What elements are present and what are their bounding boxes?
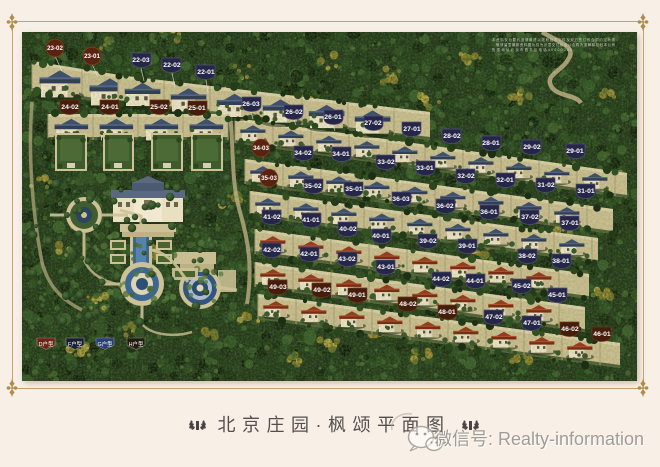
svg-text:22-03: 22-03 [132,57,150,64]
svg-text:25-02: 25-02 [150,104,168,111]
svg-text:37-02: 37-02 [521,214,539,221]
svg-text:40-01: 40-01 [372,233,390,240]
svg-text:F户型: F户型 [68,340,83,348]
svg-text:26-02: 26-02 [285,109,303,116]
svg-text:26-03: 26-03 [242,101,260,108]
svg-text:32-01: 32-01 [496,177,514,184]
svg-text:47-02: 47-02 [485,314,503,321]
svg-text:33-02: 33-02 [377,159,395,166]
svg-text:36-03: 36-03 [392,196,410,203]
svg-text:49-01: 49-01 [348,292,366,299]
svg-text:28-01: 28-01 [482,140,500,147]
svg-text:35-02: 35-02 [304,183,322,190]
svg-text:45-01: 45-01 [548,292,566,299]
svg-text:31-02: 31-02 [537,182,555,189]
svg-text:31-01: 31-01 [577,188,595,195]
svg-text:27-01: 27-01 [403,126,421,133]
svg-text:24-01: 24-01 [101,104,119,111]
svg-text:43-01: 43-01 [377,264,395,271]
svg-text:42-02: 42-02 [263,247,281,254]
svg-text:23-02: 23-02 [47,45,63,52]
svg-text:敬请留意最新资料图片仅为示意交付标准以合同为准解释权归本公司: 敬请留意最新资料图片仅为示意交付标准以合同为准解释权归本公司 [496,42,615,47]
svg-text:25-01: 25-01 [188,105,206,112]
svg-text:49-03: 49-03 [269,284,287,291]
svg-text:46-02: 46-02 [561,326,579,333]
svg-text:35-03: 35-03 [261,175,277,182]
svg-text:47-01: 47-01 [523,320,541,327]
svg-text:28-02: 28-02 [443,133,461,140]
svg-text:35-01: 35-01 [345,186,363,193]
svg-text:38-02: 38-02 [518,253,536,260]
svg-text:22-02: 22-02 [163,62,181,69]
svg-text:43-02: 43-02 [338,256,356,263]
svg-text:45-02: 45-02 [513,283,531,290]
svg-text:29-01: 29-01 [566,148,584,155]
svg-text:41-01: 41-01 [302,217,320,224]
svg-text:22-01: 22-01 [197,69,215,76]
svg-text:39-01: 39-01 [458,243,476,250]
svg-text:44-01: 44-01 [466,278,484,285]
svg-text:34-01: 34-01 [332,151,350,158]
svg-text:37-01: 37-01 [561,220,579,227]
svg-text:48-02: 48-02 [399,301,417,308]
svg-text:44-02: 44-02 [432,276,450,283]
svg-text:本资料仅为要约邀请最终以政府批准文件及双方签订的合同约定为准: 本资料仅为要约邀请最终以政府批准文件及双方签订的合同约定为准 [492,37,616,42]
svg-text:24-02: 24-02 [61,104,79,111]
svg-text:32-02: 32-02 [457,173,475,180]
svg-text:48-01: 48-01 [438,309,456,316]
svg-text:42-01: 42-01 [300,251,318,258]
svg-text:29-02: 29-02 [523,144,541,151]
svg-text:26-01: 26-01 [324,114,342,121]
svg-text:40-02: 40-02 [339,226,357,233]
svg-text:G户型: G户型 [98,340,114,348]
svg-text:23-01: 23-01 [84,53,100,60]
svg-text:39-02: 39-02 [419,238,437,245]
svg-text:34-03: 34-03 [253,145,269,152]
svg-text:27-02: 27-02 [364,120,382,127]
svg-text:49-02: 49-02 [313,287,331,294]
svg-text:38-01: 38-01 [552,258,570,265]
svg-text:46-01: 46-01 [593,331,611,338]
svg-text:34-02: 34-02 [294,150,312,157]
svg-text:售楼地址北京市昌平区电话40000000: 售楼地址北京市昌平区电话40000000 [492,47,572,52]
svg-text:H户型: H户型 [129,340,144,348]
svg-text:36-02: 36-02 [436,203,454,210]
svg-text:D户型: D户型 [39,340,54,348]
svg-text:33-01: 33-01 [416,165,434,172]
svg-text:36-01: 36-01 [480,209,498,216]
svg-text:41-02: 41-02 [263,214,281,221]
